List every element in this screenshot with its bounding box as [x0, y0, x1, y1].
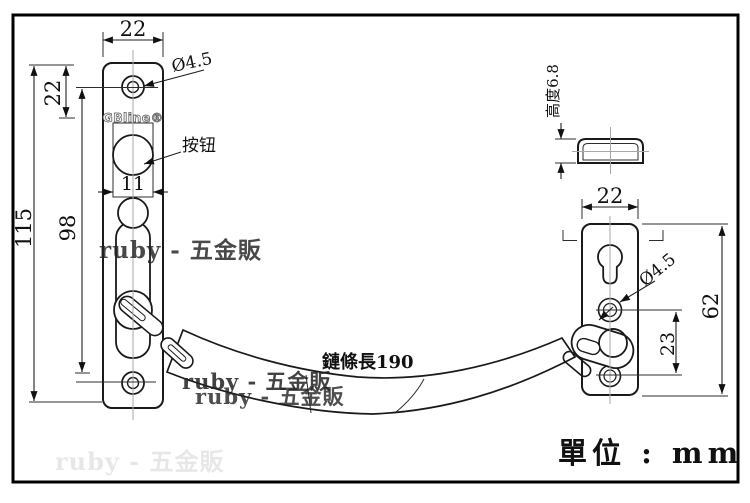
- hole-spacing-label: 23: [657, 332, 679, 356]
- unit-label: 單位 : mm: [558, 436, 743, 470]
- slot-height-label: 98: [56, 215, 80, 242]
- brand-logo: GBline®: [102, 110, 163, 125]
- top-hole-offset-label: 22: [41, 80, 65, 107]
- watermark-1: ruby - 五金販: [99, 237, 262, 264]
- button-width-label: 11: [121, 173, 145, 195]
- cap-height-label: 高度6.8: [544, 64, 562, 118]
- chain-length-label: 鏈條長190: [322, 351, 414, 373]
- right-width-label: 22: [597, 184, 624, 208]
- technical-drawing-page: 22 115 22 98 11 Ø4.5 按钮 GBline® 高度6.8 22…: [0, 0, 750, 503]
- watermark-4: ruby - 五金販: [55, 447, 225, 476]
- right-height-label: 62: [699, 293, 723, 320]
- total-height-label: 115: [12, 208, 36, 248]
- left-width-label: 22: [120, 17, 147, 41]
- drawing-canvas: 22 115 22 98 11 Ø4.5 按钮 GBline® 高度6.8 22…: [0, 0, 750, 503]
- button-label: 按钮: [182, 136, 216, 156]
- watermark-3: ruby - 五金販: [195, 384, 345, 409]
